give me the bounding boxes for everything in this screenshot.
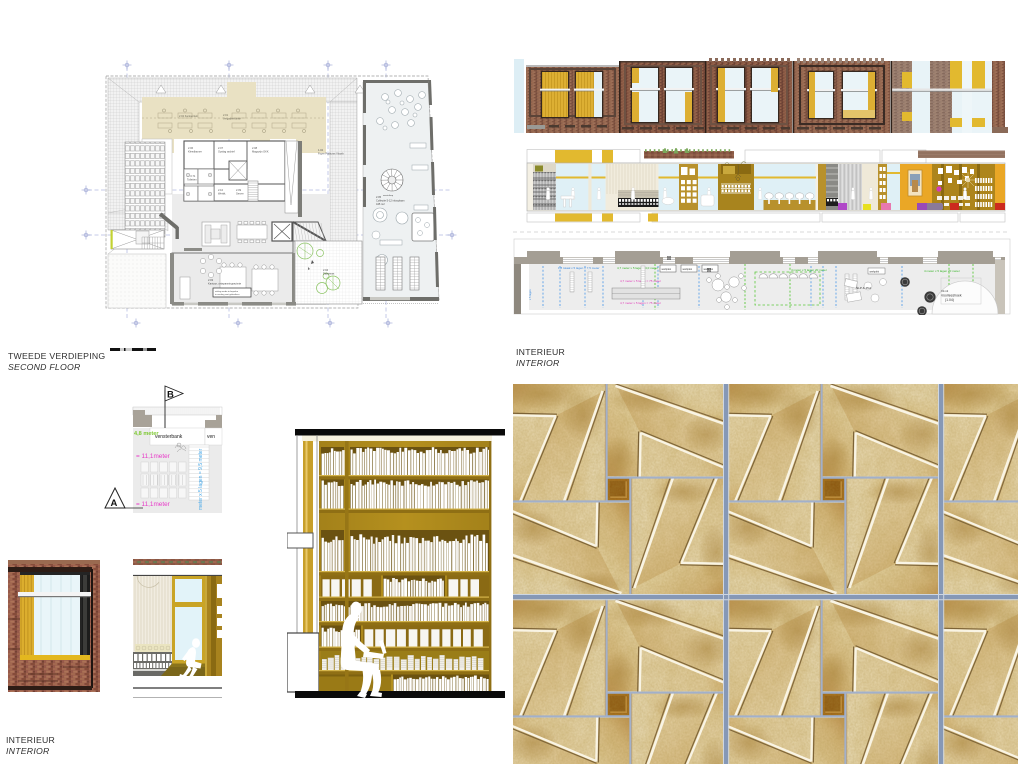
svg-text:2.03: 2.03 — [208, 278, 214, 282]
svg-text:x 5 lagen: x 5 lagen — [528, 289, 532, 300]
svg-text:Kleedkamer: Kleedkamer — [188, 150, 202, 154]
svg-text:4 meter x 5 lagen 20 meter: 4 meter x 5 lagen 20 meter — [924, 269, 960, 273]
svg-text:werkplek: werkplek — [870, 271, 880, 274]
svg-text:werkplek: werkplek — [683, 268, 693, 271]
svg-text:meter x 5 lagen = 9,5 meter: meter x 5 lagen = 9,5 meter — [198, 448, 204, 510]
svg-text:in overleg met gebruikers: in overleg met gebruikers — [215, 293, 240, 296]
svg-text:werkplek: werkplek — [662, 268, 672, 271]
svg-text:Vergaderruimte: Vergaderruimte — [223, 117, 241, 121]
svg-text:Opslag archief: Opslag archief — [218, 150, 235, 154]
svg-text:Kantoor, ontspanningsruimte: Kantoor, ontspanningsruimte — [208, 282, 242, 286]
svg-text:(1.04): (1.04) — [945, 298, 954, 302]
svg-text:Magazijn OKK: Magazijn OKK — [252, 150, 269, 154]
svg-text:B: B — [167, 390, 174, 401]
svg-text:2.09: 2.09 — [236, 188, 242, 192]
svg-text:2.01: 2.01 — [223, 113, 229, 117]
svg-text:2.05: 2.05 — [376, 195, 382, 199]
svg-text:4,7 meter x 5 lagen 14,0 mete: 4,7 meter x 5 lagen 14,0 meter — [617, 266, 658, 270]
svg-text:← 0.71: ← 0.71 — [187, 174, 196, 178]
svg-text:445 m2: 445 m2 — [376, 202, 385, 206]
svg-text:4,8 meter: 4,8 meter — [134, 431, 159, 437]
svg-text:ven: ven — [207, 434, 215, 440]
svg-text:Dakterras: Dakterras — [323, 272, 335, 276]
svg-text:Toiletten: Toiletten — [187, 178, 197, 182]
svg-text:wenteltrap: wenteltrap — [383, 194, 394, 197]
svg-text:Collectie 5-12 inlooplaan: Collectie 5-12 inlooplaan — [376, 199, 405, 203]
svg-text:NLP & 45ul: NLP & 45ul — [856, 286, 871, 290]
svg-text:vensterbank: vensterbank — [155, 434, 183, 440]
svg-text:= 11,1meter: = 11,1meter — [136, 453, 171, 460]
svg-text:2.02 Kantoortuin: 2.02 Kantoortuin — [179, 114, 199, 118]
svg-text:Voorleeshoek: Voorleeshoek — [941, 294, 962, 298]
svg-text:2.07: 2.07 — [218, 146, 224, 150]
svg-text:zieling mede te bepalen: zieling mede te bepalen — [215, 290, 239, 293]
svg-text:A: A — [111, 498, 118, 509]
svg-text:2.06: 2.06 — [188, 146, 194, 150]
svg-text:4 meter x 5 lagen 20 meter: 4 meter x 5 lagen 20 meter — [791, 268, 827, 272]
svg-text:Foyer Podiums Vloorb: Foyer Podiums Vloorb — [318, 152, 344, 156]
svg-text:1.02: 1.02 — [318, 148, 324, 152]
svg-text:2.08: 2.08 — [252, 146, 258, 150]
svg-text:43 m2: 43 m2 — [941, 289, 949, 293]
svg-text:4,7 meter x 5 lagen = 75 meter: 4,7 meter x 5 lagen = 75 meter — [620, 279, 661, 283]
svg-text:Server: Server — [236, 192, 244, 196]
svg-text:Werkk.: Werkk. — [218, 192, 226, 196]
svg-text:4,7 meter x 5 lagen = 75 meter: 4,7 meter x 5 lagen = 75 meter — [620, 301, 661, 305]
svg-text:= 11,1meter: = 11,1meter — [136, 501, 171, 508]
svg-text:2.04: 2.04 — [323, 268, 329, 272]
svg-text:1,8 totaal x 5 lagen = 7,5 met: 1,8 totaal x 5 lagen = 7,5 meter — [558, 266, 599, 270]
svg-text:2.10: 2.10 — [218, 188, 224, 192]
